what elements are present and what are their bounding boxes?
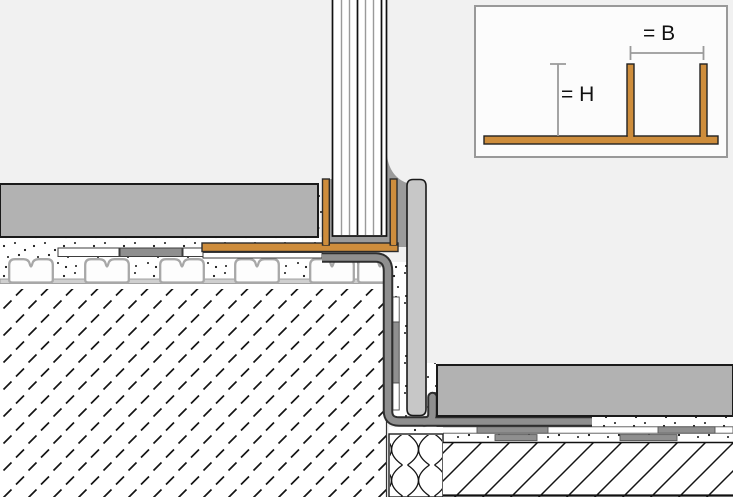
- legend-profile-base: [484, 136, 718, 144]
- screed-left: [0, 284, 387, 497]
- glass-panel: [333, 0, 387, 236]
- insulation-top-speckle: [389, 427, 443, 434]
- legend-profile-right-leg: [700, 64, 707, 136]
- construction-detail-drawing: = B = H: [0, 0, 733, 497]
- profile-left-leg: [323, 179, 330, 245]
- riser-cover-profile: [407, 180, 426, 416]
- legend-height-label: = H: [561, 83, 594, 107]
- insulation-strip-column: [389, 434, 443, 497]
- legend-box: = B = H: [474, 5, 728, 158]
- legend-profile-diagram: [476, 7, 726, 156]
- lower-floor-tile: [437, 365, 733, 416]
- upper-floor-tile: [0, 184, 318, 237]
- screed-right: [443, 442, 733, 497]
- legend-dim-B-line: [631, 46, 704, 60]
- legend-profile-left-leg: [627, 64, 634, 136]
- profile-right-leg: [390, 179, 397, 245]
- profile-base-flange: [202, 243, 398, 252]
- seal-band-segments: [393, 297, 399, 410]
- legend-width-label: = B: [643, 22, 675, 46]
